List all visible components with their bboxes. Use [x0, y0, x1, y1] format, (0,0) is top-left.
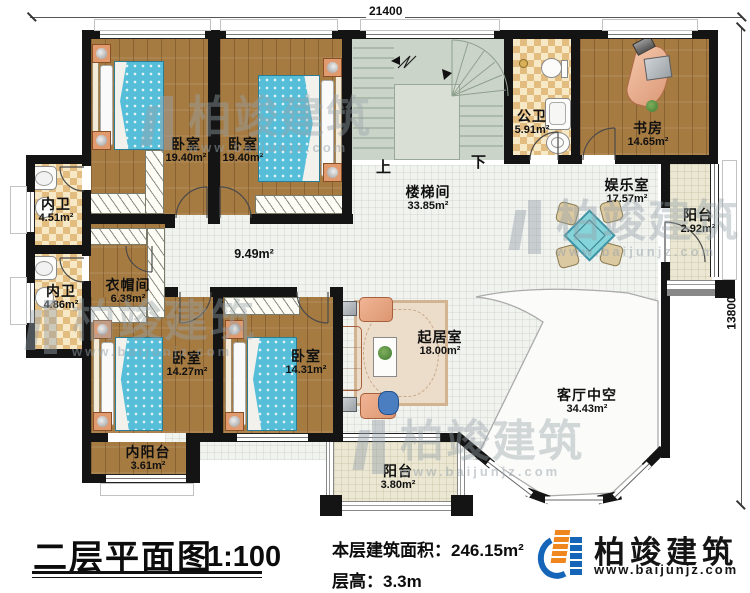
stair-up-label: 上 — [376, 156, 391, 177]
room-label-bath-1: 内卫4.51m² — [16, 196, 96, 225]
stair-direction-arrow — [442, 69, 452, 80]
bay-window — [456, 435, 663, 500]
floor-plan-canvas: 21400 13800 — [0, 0, 750, 593]
stair-break-line — [398, 56, 416, 68]
plan-scale: 1:100 — [207, 541, 281, 574]
room-label-staircase: 楼梯间33.85m² — [388, 184, 468, 213]
stair-treads — [353, 40, 508, 148]
title-underline — [32, 577, 262, 578]
room-label-study: 书房14.65m² — [608, 120, 688, 149]
stair-direction-arrow — [391, 56, 400, 65]
room-label-balcony-right: 阳台2.92m² — [663, 207, 733, 236]
room-label-living-room: 起居室18.00m² — [400, 329, 480, 358]
room-label-balcony-bottom: 阳台3.80m² — [358, 463, 438, 492]
company-website: www.baijunjz.com — [594, 562, 738, 577]
floor-height-text: 层高：3.3m — [332, 567, 422, 592]
room-label-living-void: 客厅中空34.43m² — [547, 387, 627, 416]
hallway-area-label: 9.49m² — [214, 247, 294, 261]
room-label-bedroom-4: 卧室14.31m² — [266, 348, 346, 377]
room-label-inner-balcony: 内阳台3.61m² — [108, 444, 188, 473]
floor-area-text: 本层建筑面积：246.15m² — [332, 536, 524, 561]
room-label-bedroom-3: 卧室14.27m² — [147, 350, 227, 379]
stair-down-label: 下 — [471, 151, 486, 172]
plan-linework — [0, 0, 750, 520]
company-logo-icon — [538, 527, 590, 585]
room-label-public-bath: 公卫5.91m² — [492, 108, 572, 137]
room-label-rec-room: 娱乐室17.57m² — [587, 177, 667, 206]
room-label-closet: 衣帽间6.38m² — [88, 277, 168, 306]
room-label-bedroom-2: 卧室19.40m² — [203, 136, 283, 165]
